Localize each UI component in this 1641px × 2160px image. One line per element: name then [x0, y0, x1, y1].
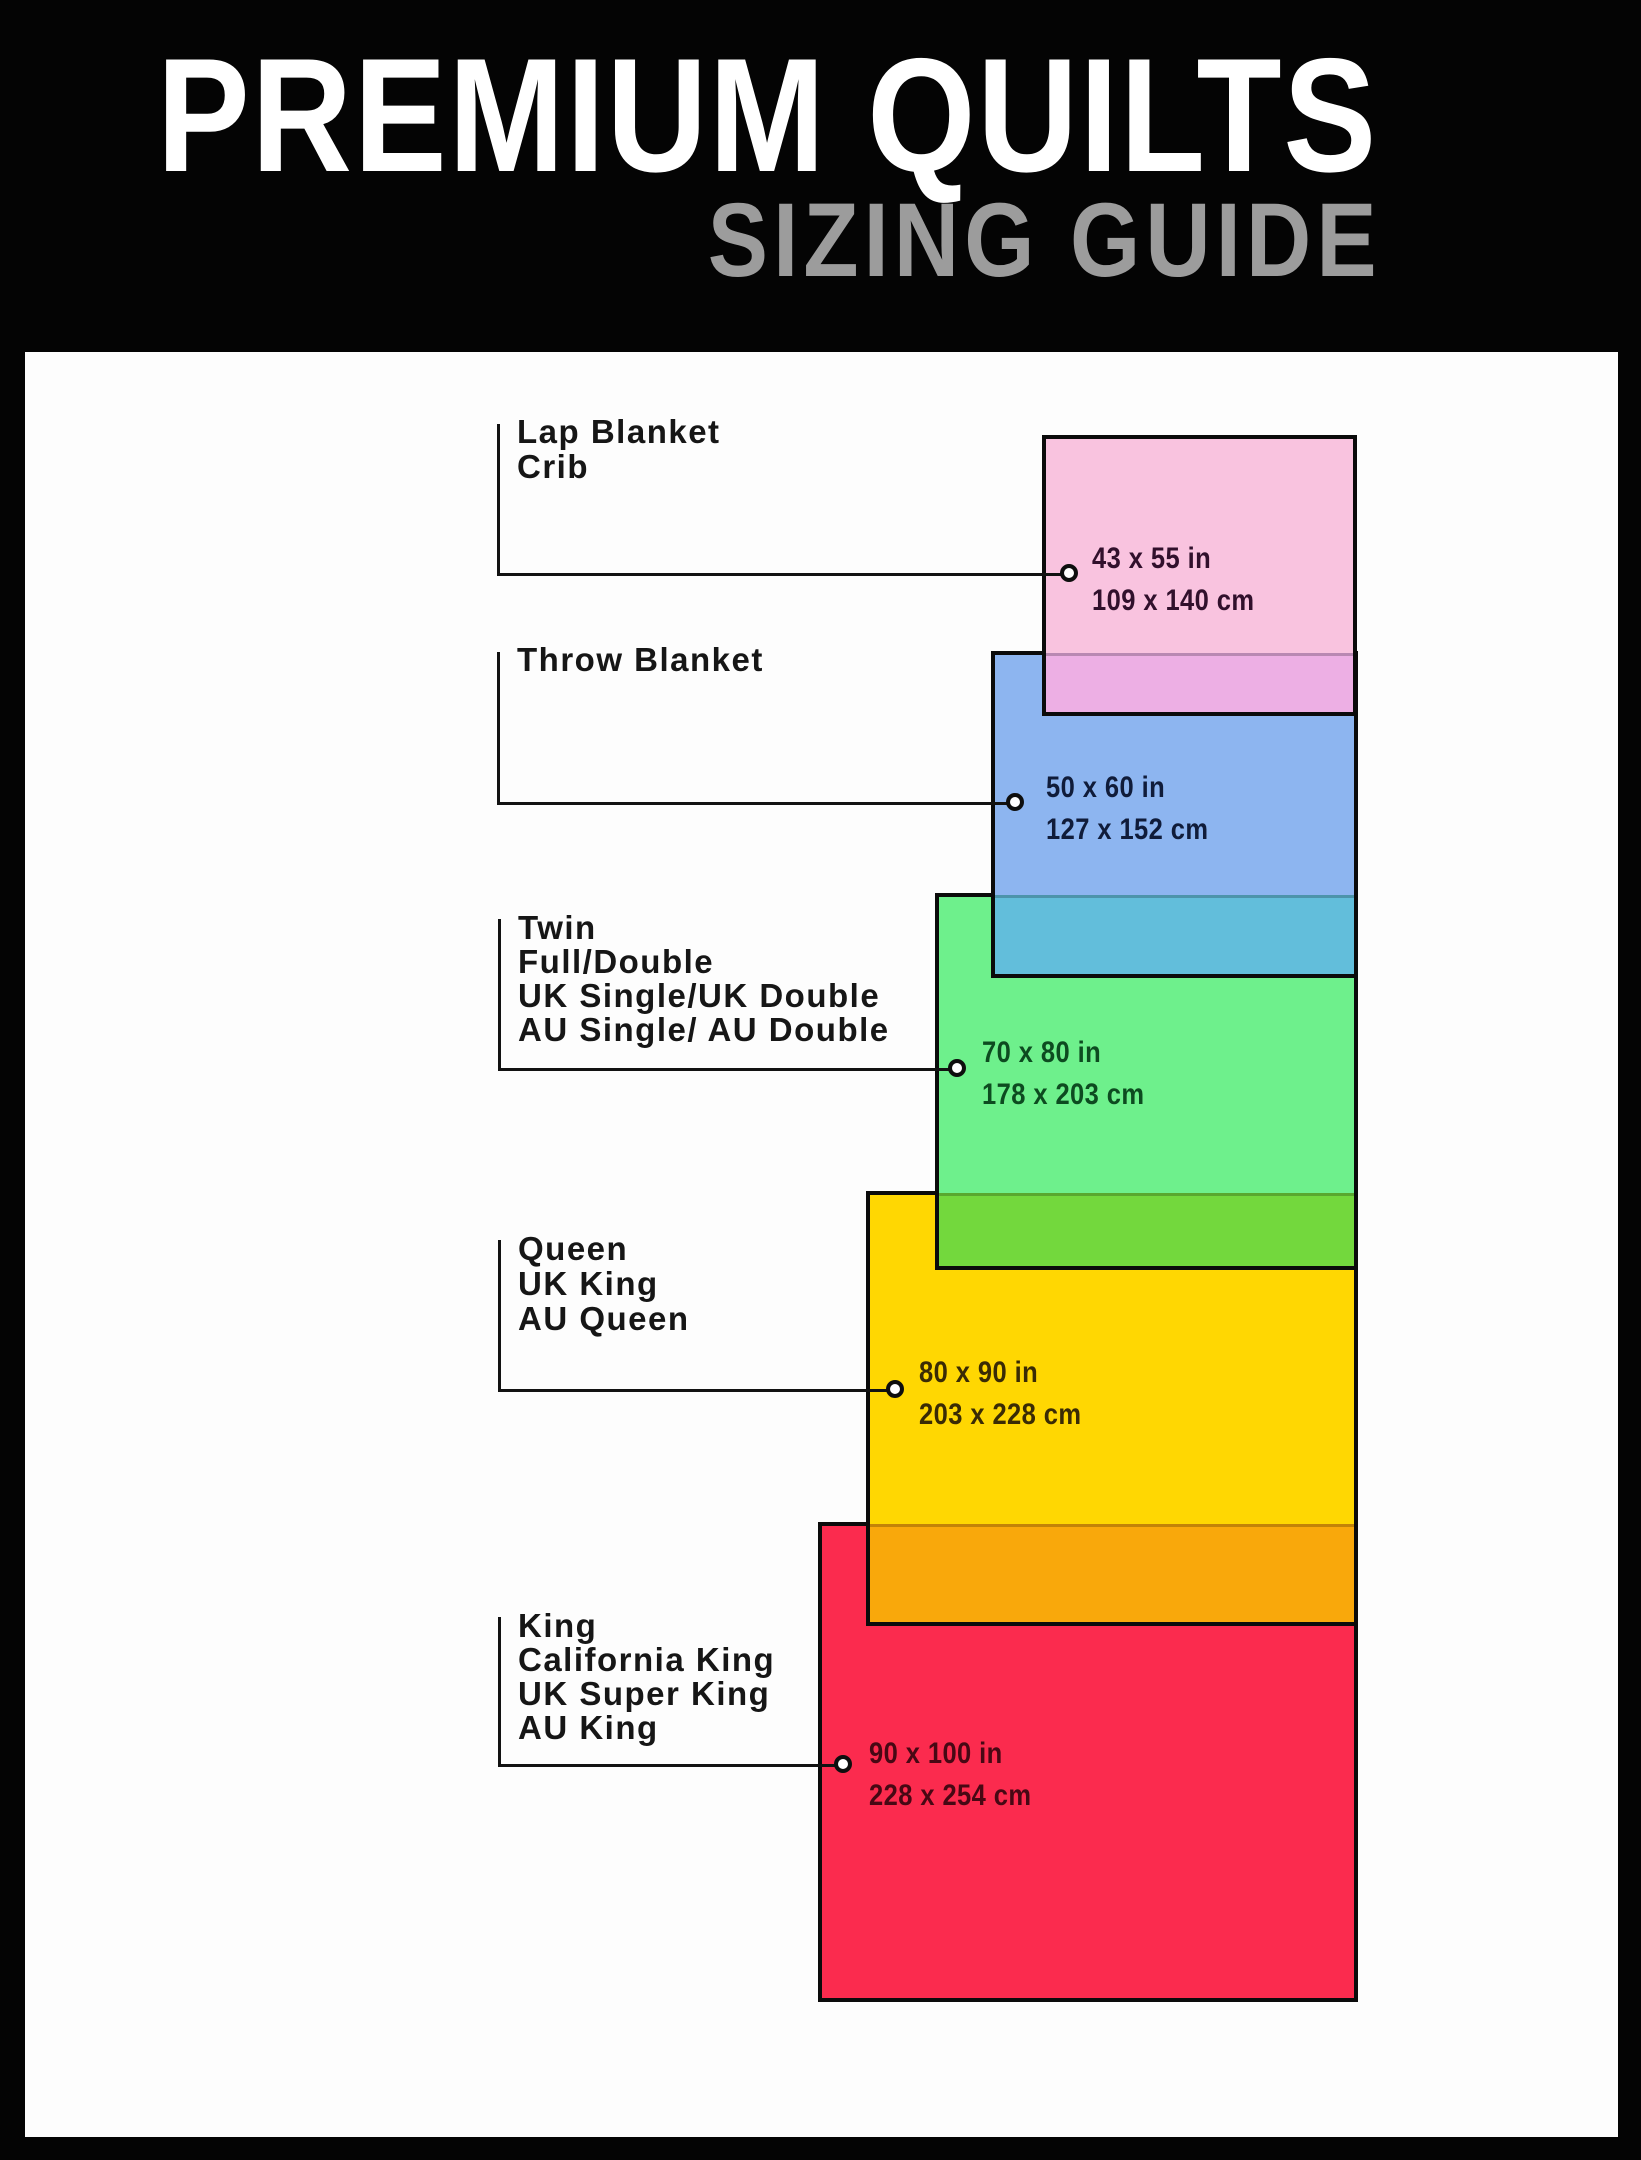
measurements-throw: 50 x 60 in 127 x 152 cm [1046, 767, 1208, 851]
connector-dot-twin [948, 1059, 966, 1077]
overlap-band-queen-over-king [870, 1524, 1354, 1622]
connector-line-twin [498, 919, 949, 1071]
overlap-band-throw-over-twin [995, 895, 1354, 974]
connector-dot-throw [1006, 793, 1024, 811]
connector-line-throw [497, 652, 1007, 805]
connector-dot-king [834, 1755, 852, 1773]
overlap-band-lap-over-throw [1046, 653, 1353, 712]
measurements-lap: 43 x 55 in 109 x 140 cm [1092, 538, 1254, 622]
measure-inches: 43 x 55 in [1092, 538, 1254, 580]
connector-line-lap [497, 424, 1061, 576]
connector-dot-lap [1060, 564, 1078, 582]
page-title: PREMIUM QUILTS [157, 35, 1378, 197]
connector-line-king [498, 1617, 835, 1767]
measure-cm: 109 x 140 cm [1092, 580, 1254, 622]
connector-dot-queen [886, 1380, 904, 1398]
page-subtitle: SIZING GUIDE [708, 188, 1382, 293]
measurements-queen: 80 x 90 in 203 x 228 cm [919, 1352, 1081, 1436]
overlap-band-twin-over-queen [939, 1193, 1354, 1266]
measure-cm: 127 x 152 cm [1046, 809, 1208, 851]
measure-cm: 228 x 254 cm [869, 1775, 1031, 1817]
measure-inches: 90 x 100 in [869, 1733, 1031, 1775]
measure-cm: 178 x 203 cm [982, 1074, 1144, 1116]
measure-cm: 203 x 228 cm [919, 1394, 1081, 1436]
quilt-sizing-infographic: PREMIUM QUILTS SIZING GUIDE Lap Blanket … [0, 0, 1641, 2160]
measure-inches: 50 x 60 in [1046, 767, 1208, 809]
measurements-twin: 70 x 80 in 178 x 203 cm [982, 1032, 1144, 1116]
measurements-king: 90 x 100 in 228 x 254 cm [869, 1733, 1031, 1817]
measure-inches: 80 x 90 in [919, 1352, 1081, 1394]
measure-inches: 70 x 80 in [982, 1032, 1144, 1074]
connector-line-queen [498, 1240, 887, 1392]
